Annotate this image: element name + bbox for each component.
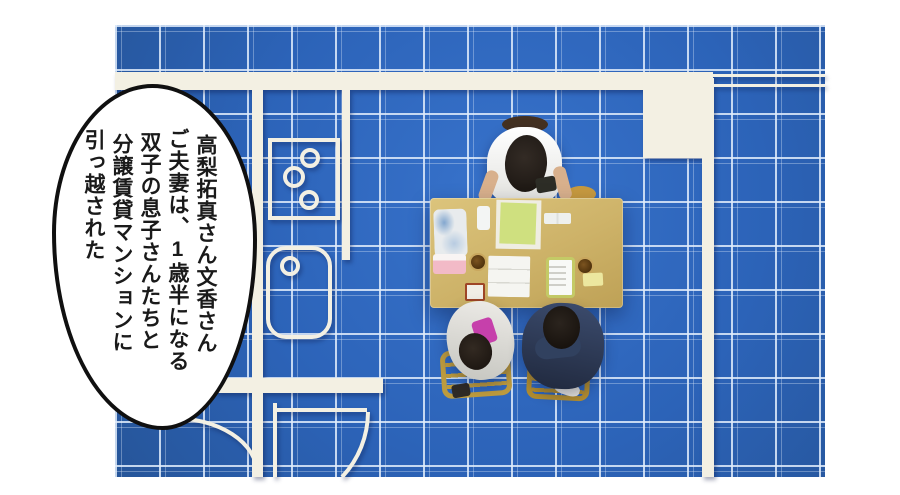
bubble-line-2: ご夫妻は、1歳半になる <box>163 128 191 410</box>
plastic-bag <box>433 208 468 257</box>
bubble-line-4: 分譲賃貸マンションに <box>107 128 135 410</box>
bubble-line-3: 双子の息子さんたちと <box>135 128 163 410</box>
tablet-screen-text <box>549 262 566 288</box>
balcony-rail-2 <box>713 84 825 87</box>
tissue-box <box>433 254 466 274</box>
stove-burner-2 <box>285 168 303 186</box>
door-leaf-line <box>273 403 277 477</box>
paper-cards <box>544 213 571 224</box>
door-open-line <box>273 408 367 412</box>
bottom-wall <box>216 378 383 393</box>
tea-cup-2 <box>578 259 592 273</box>
tea-cup-1 <box>471 255 485 269</box>
right-wall <box>702 78 714 477</box>
stove-burner-3 <box>301 192 317 208</box>
balcony-rail-1 <box>713 74 825 77</box>
tv-frame: 高梨拓真さん文香さん ご夫妻は、1歳半になる 双子の息子さんたちと 分譲賃貸マン… <box>0 0 900 495</box>
door-swing-arc-left <box>172 418 257 473</box>
kitchen-divider-wall <box>342 90 350 260</box>
person-right-hair <box>543 306 580 349</box>
green-booklet <box>499 202 536 244</box>
stove-burner-1 <box>302 150 318 166</box>
bubble-line-5: 引っ越された <box>79 128 107 410</box>
door-swing-arc-right <box>342 412 368 477</box>
top-wall <box>115 72 713 90</box>
white-phone <box>477 206 490 230</box>
red-stamp-box <box>465 283 485 301</box>
speech-bubble: 高梨拓真さん文香さん ご夫妻は、1歳半になる 双子の息子さんたちと 分譲賃貸マン… <box>52 84 257 430</box>
yellow-card <box>583 272 604 286</box>
trifold-document <box>488 256 531 298</box>
speech-bubble-text: 高梨拓真さん文香さん ご夫妻は、1歳半になる 双子の息子さんたちと 分譲賃貸マン… <box>79 128 219 410</box>
bubble-line-1: 高梨拓真さん文香さん <box>191 128 219 410</box>
bathtub <box>268 248 330 337</box>
bathtub-drain <box>282 258 298 274</box>
